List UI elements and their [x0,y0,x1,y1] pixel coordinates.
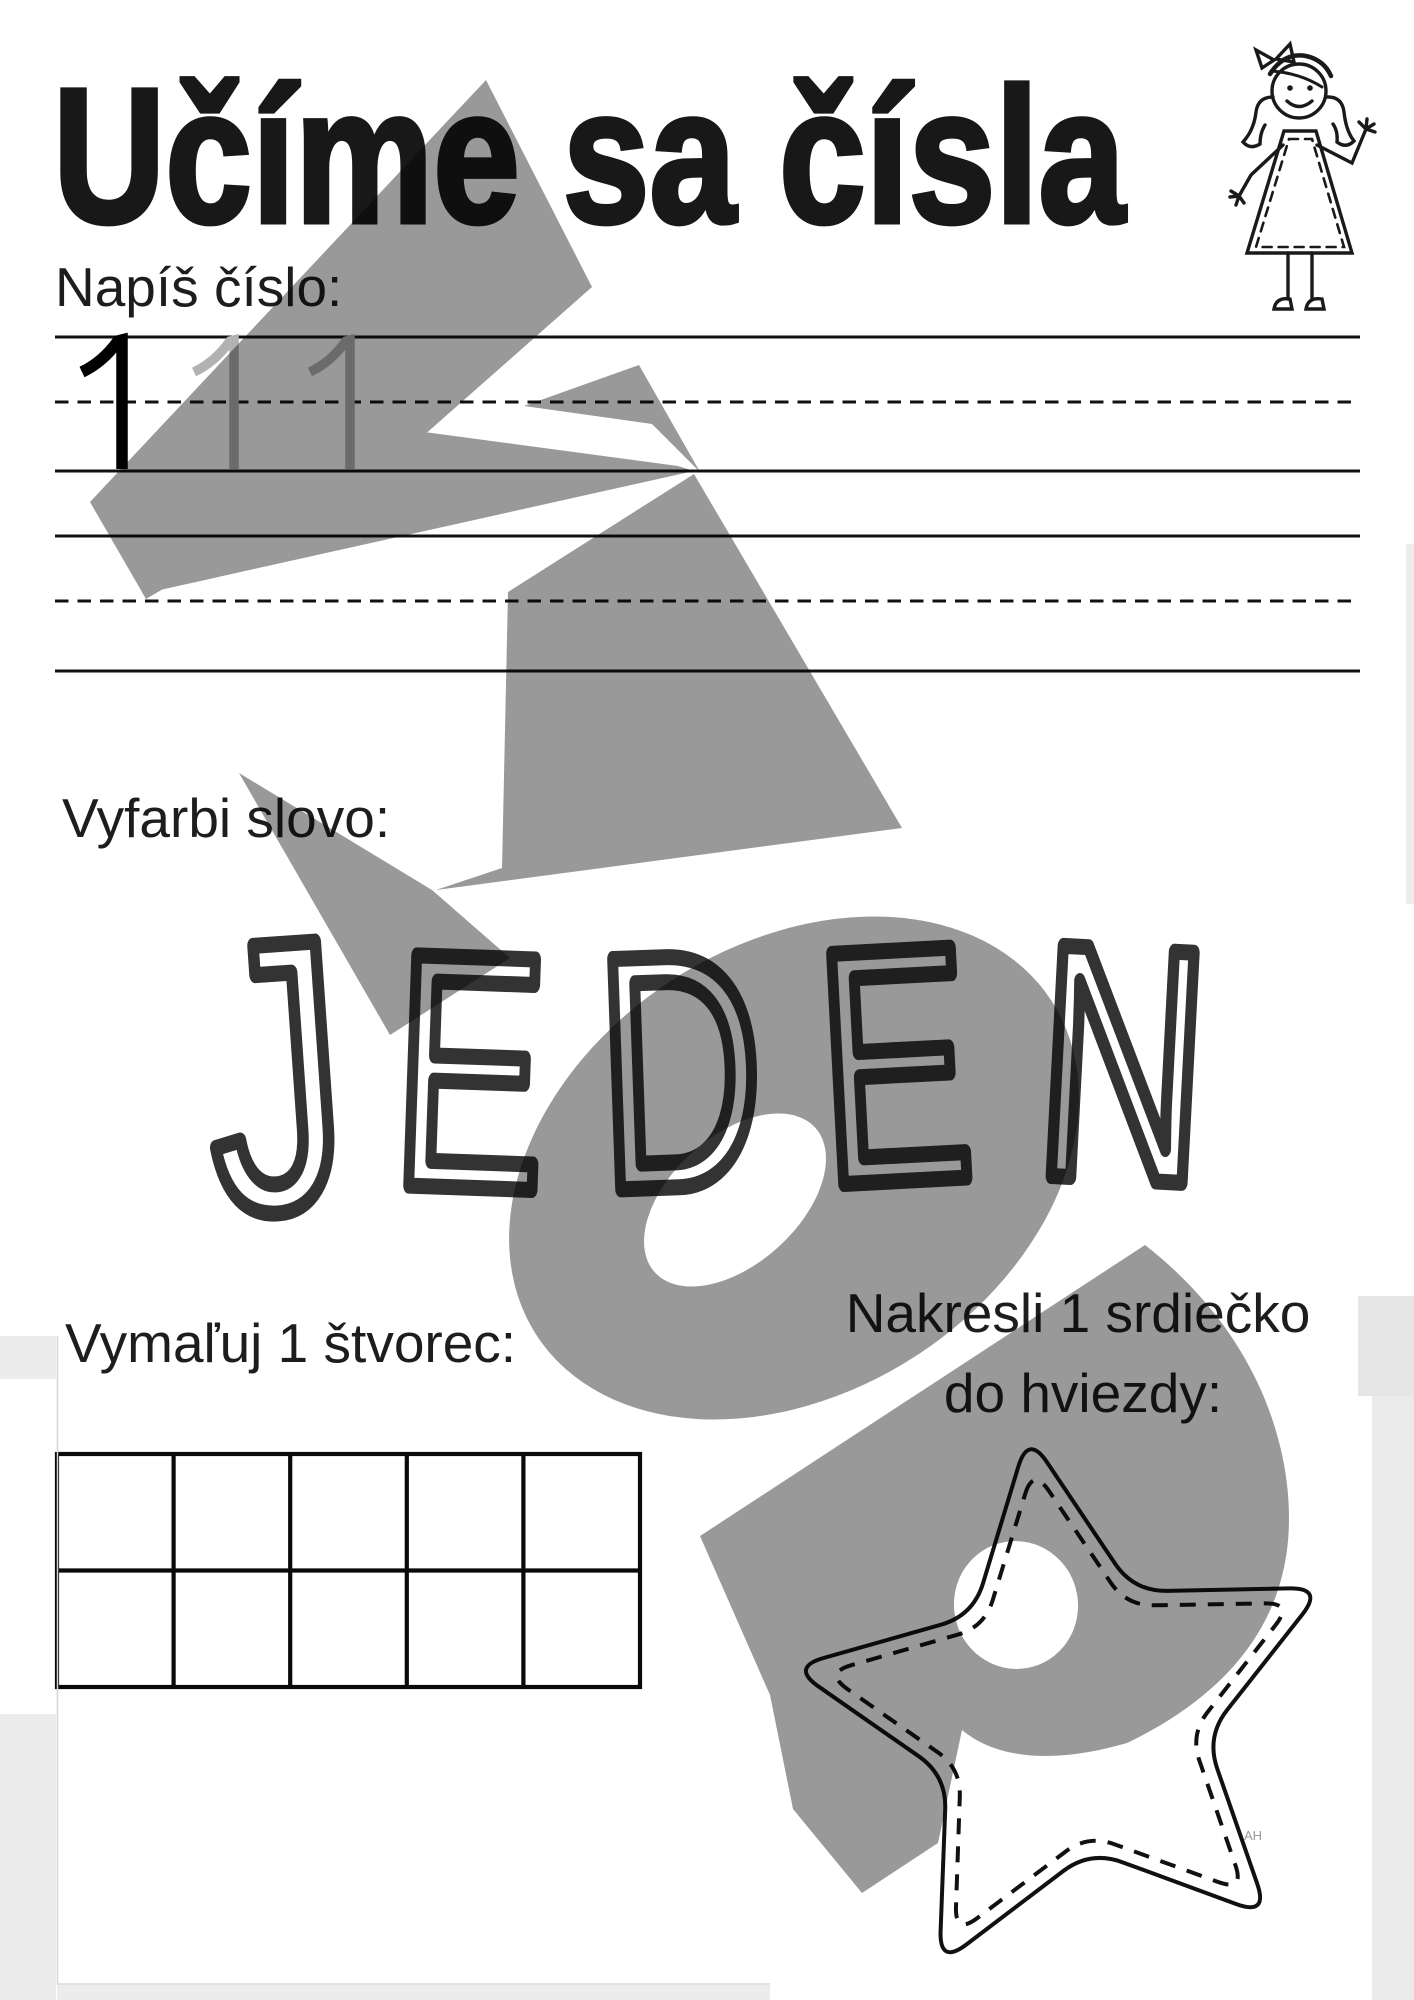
svg-text:Učíme sa čísla: Učíme sa čísla [53,49,1127,263]
svg-text:AH: AH [1244,1828,1262,1843]
svg-text:Vymaľuj 1 štvorec:: Vymaľuj 1 štvorec: [65,1312,516,1374]
